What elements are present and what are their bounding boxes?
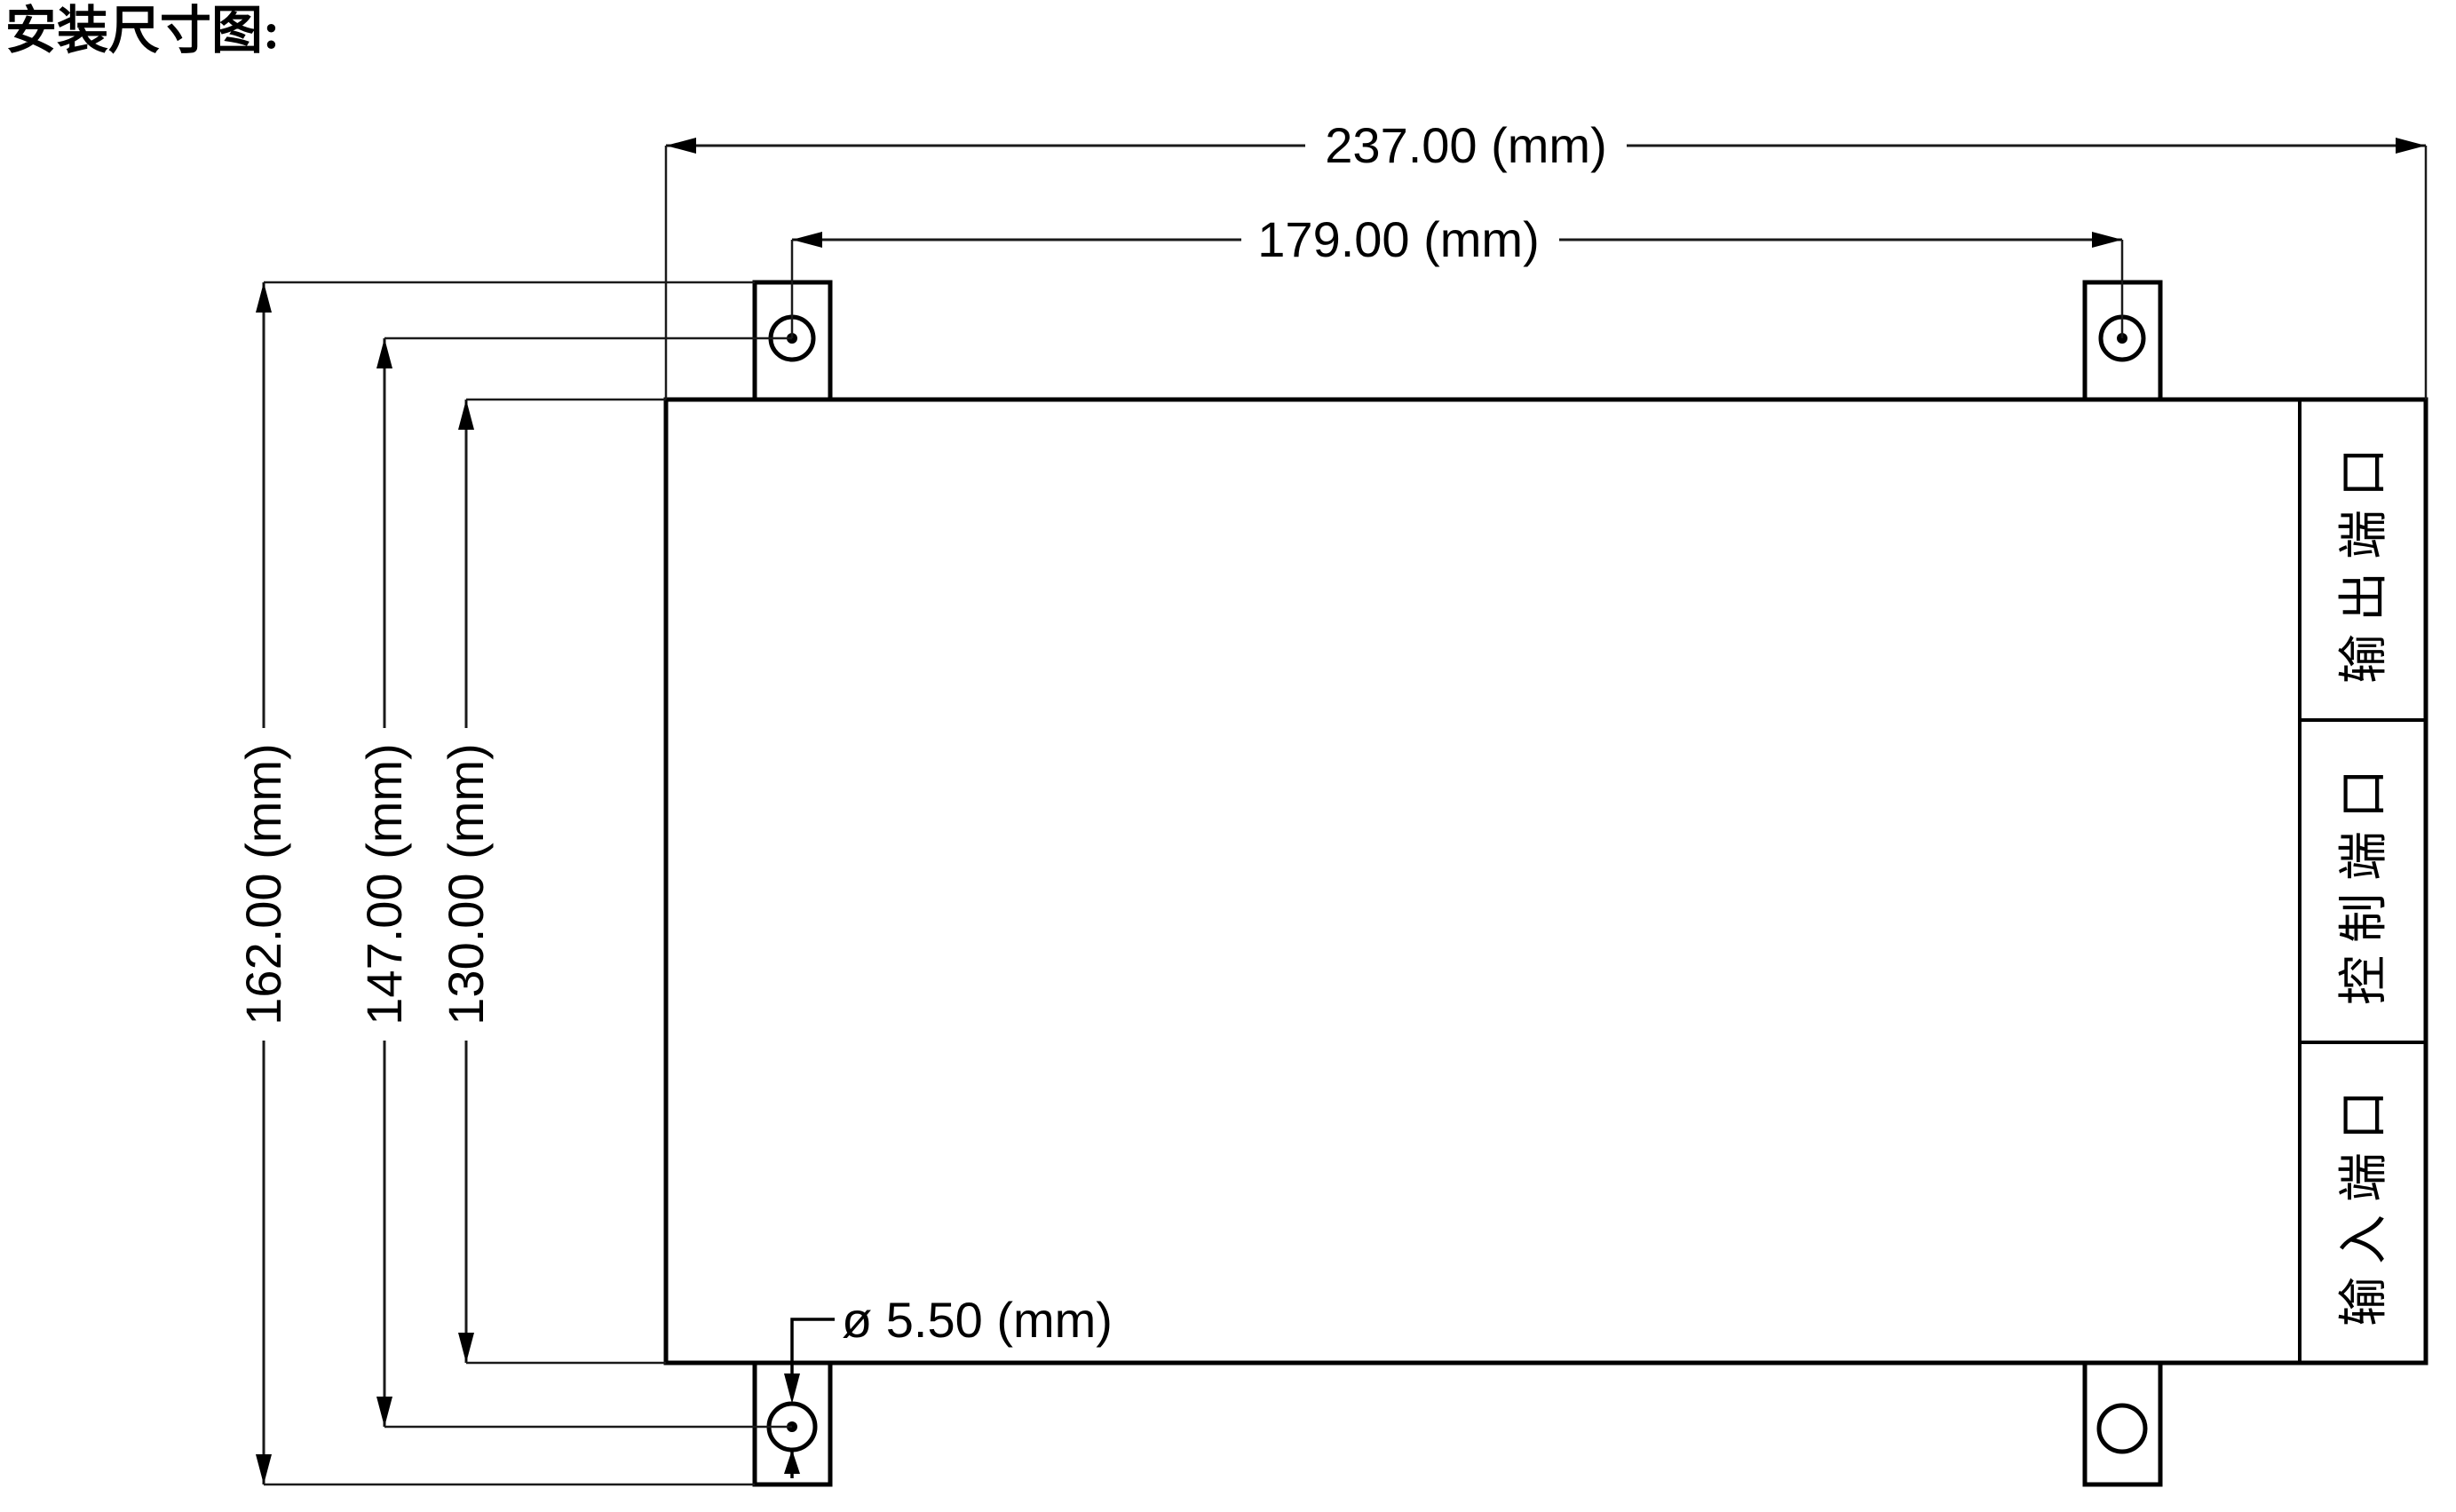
dim-text-body-height: 130.00 (mm) (438, 743, 494, 1025)
arrow-down-icon (376, 1397, 392, 1427)
arrow-up-icon (376, 338, 392, 368)
arrow-up-icon (256, 282, 272, 313)
mounting-hole-bottom-right (2099, 1405, 2145, 1452)
dim-overall-height: 162.00 (mm) (235, 282, 755, 1484)
dim-text-overall-width: 237.00 (mm) (1325, 117, 1606, 173)
mounting-holes (769, 317, 2145, 1452)
dim-text-hole-spacing-x: 179.00 (mm) (1257, 211, 1539, 267)
dim-body-height: 130.00 (mm) (438, 400, 666, 1363)
page-title: 安装尺寸图: (5, 2, 280, 59)
arrow-down-icon (256, 1454, 272, 1484)
drawing-canvas: 安装尺寸图: 输出端口 控制端口 输入端口 (0, 0, 2456, 1512)
arrow-down-icon (458, 1333, 474, 1363)
dim-hole-spacing-y: 147.00 (mm) (356, 338, 792, 1427)
input-port-label: 输入端口 (2335, 1078, 2391, 1326)
device-body-outline (666, 400, 2426, 1363)
dim-text-overall-height: 162.00 (mm) (235, 743, 291, 1025)
arrow-left-icon (792, 232, 822, 248)
installation-dimension-drawing: 安装尺寸图: 输出端口 控制端口 输入端口 (0, 0, 2456, 1512)
dim-hole-diameter: ø 5.50 (mm) (784, 1292, 1113, 1478)
arrow-up-icon (458, 400, 474, 430)
mounting-tab-bottom-right (2085, 1363, 2160, 1484)
arrow-right-icon (2396, 138, 2426, 154)
dim-hole-spacing-x: 179.00 (mm) (792, 211, 2122, 338)
arrow-up-icon (784, 1450, 800, 1474)
output-port-label: 输出端口 (2335, 435, 2391, 684)
control-port-label: 控制端口 (2335, 756, 2391, 1005)
arrow-left-icon (666, 138, 696, 154)
arrow-down-icon (784, 1373, 800, 1404)
arrow-right-icon (2092, 232, 2122, 248)
dim-text-hole-diameter: ø 5.50 (mm) (842, 1292, 1113, 1348)
port-strip: 输出端口 控制端口 输入端口 (2300, 400, 2426, 1363)
dim-text-hole-spacing-y: 147.00 (mm) (356, 743, 412, 1025)
